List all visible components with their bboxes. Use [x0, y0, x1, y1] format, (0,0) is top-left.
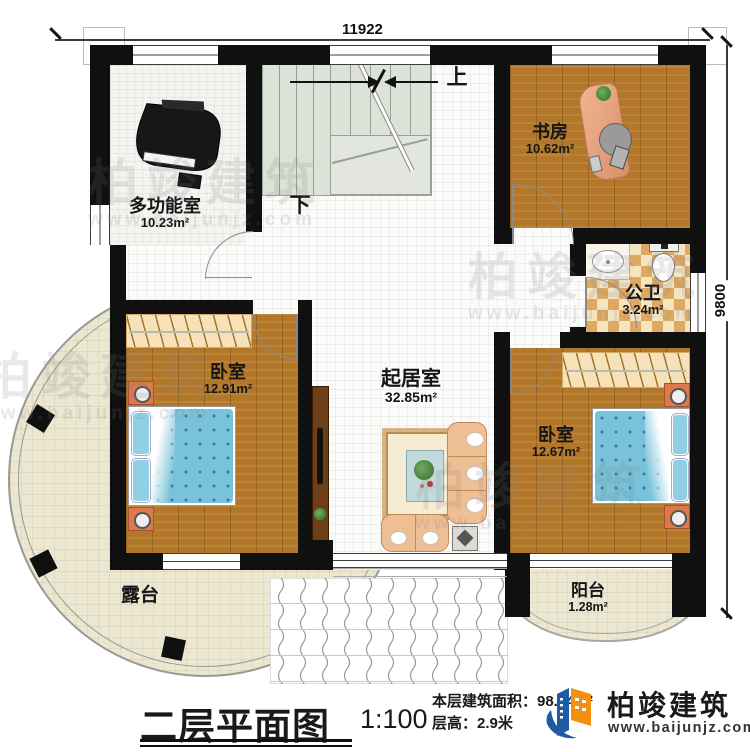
- sink-drain: [606, 260, 610, 264]
- nightstand-lamp-icon: [134, 512, 151, 529]
- cabinet-plant-icon: [314, 508, 326, 520]
- wall: [312, 540, 333, 570]
- sofa-pillow: [422, 531, 439, 545]
- bed-pillow: [132, 459, 150, 502]
- room-label-terrace: 露台: [105, 585, 175, 606]
- room-name: 卧室: [511, 425, 601, 445]
- room-name: 阳台: [548, 581, 628, 600]
- company-logo: 柏竣建筑 www.baijunjz.com: [545, 680, 745, 744]
- staircase: [262, 65, 432, 196]
- balcony-door: [530, 553, 672, 568]
- stair-arrowhead-left: [384, 76, 396, 88]
- wall: [690, 65, 706, 273]
- company-name: 柏竣建筑: [607, 684, 731, 724]
- wall: [658, 45, 706, 65]
- door-leaf: [205, 277, 252, 279]
- nightstand: [128, 381, 154, 405]
- wall: [690, 332, 706, 553]
- sofa-pillow: [466, 432, 484, 447]
- wall: [110, 553, 163, 570]
- room-label-balcony: 阳台 1.28m²: [548, 581, 628, 614]
- stair-arrow-line: [396, 81, 438, 83]
- room-area: 32.85m²: [363, 390, 459, 406]
- door-leaf: [585, 277, 587, 327]
- dimension-tick: [49, 27, 62, 40]
- wall: [218, 45, 330, 65]
- room-area: 10.62m²: [505, 142, 595, 157]
- door-leaf: [296, 314, 298, 359]
- bed-blanket-fold: [149, 409, 175, 503]
- desk-plant-icon: [596, 86, 611, 101]
- toilet-tank-button: [661, 244, 668, 249]
- room-name: 公卫: [598, 283, 688, 303]
- wardrobe: [126, 314, 252, 348]
- bed: [592, 408, 690, 504]
- nightstand-lamp-icon: [670, 388, 687, 405]
- window: [552, 45, 658, 65]
- stair-arrow-line: [290, 81, 368, 83]
- sofa-pillow: [466, 498, 484, 513]
- stair-treads: [262, 65, 330, 196]
- room-label-living: 起居室 32.85m²: [363, 368, 459, 406]
- wardrobe-rail: [566, 370, 687, 372]
- info-height-text: 层高：2.9米: [432, 712, 513, 733]
- wall: [240, 553, 312, 570]
- patio-door: [333, 553, 507, 568]
- bed-pillow: [132, 412, 150, 455]
- wall: [494, 228, 513, 244]
- room-area: 3.24m²: [598, 303, 688, 318]
- sofa-pillow: [466, 466, 484, 481]
- roof-tiles: [270, 578, 508, 684]
- window: [690, 273, 706, 332]
- window: [163, 553, 240, 570]
- room-area: 10.23m²: [95, 216, 235, 231]
- bed-blanket-fold: [645, 411, 671, 501]
- floor-plan: 多功能室 10.23m² 书房 10.62m² 公卫 3.24m² 起居室 32…: [0, 0, 750, 752]
- company-logo-icon: [545, 680, 601, 742]
- stairs-down-label: 下: [284, 194, 316, 218]
- tv-icon: [317, 428, 323, 484]
- nightstand: [128, 507, 154, 531]
- stair-landing: [330, 135, 431, 195]
- bed-pillow: [672, 414, 688, 455]
- wall: [505, 553, 530, 617]
- wall: [90, 45, 110, 205]
- title-underline: [140, 739, 352, 742]
- bed-pillow: [672, 459, 688, 501]
- wall: [672, 553, 706, 617]
- terrace-post: [161, 636, 186, 661]
- room-name: 多功能室: [95, 196, 235, 216]
- stairs-up-label: 上: [441, 66, 473, 90]
- room-name: 露台: [105, 585, 175, 606]
- bed: [128, 406, 236, 506]
- room-label-multi: 多功能室 10.23m²: [95, 196, 235, 231]
- room-label-study: 书房 10.62m²: [505, 122, 595, 157]
- wall: [110, 245, 126, 570]
- door-leaf: [510, 348, 512, 393]
- grand-piano-icon: [126, 96, 226, 192]
- wall: [430, 45, 552, 65]
- nightstand: [664, 505, 690, 529]
- title-scale: 1:100: [360, 704, 428, 735]
- nightstand-lamp-icon: [134, 386, 151, 403]
- company-url: www.baijunjz.com: [608, 720, 750, 736]
- window: [330, 45, 430, 65]
- room-area: 1.28m²: [548, 600, 628, 614]
- door-leaf: [512, 184, 514, 244]
- room-label-bed-right: 卧室 12.67m²: [511, 425, 601, 460]
- room-area: 12.91m²: [183, 382, 273, 397]
- title-underline: [140, 745, 352, 747]
- roof-tile-pattern: [270, 578, 508, 684]
- room-area: 12.67m²: [511, 445, 601, 460]
- wall: [246, 65, 262, 232]
- room-name: 起居室: [363, 368, 459, 390]
- dimension-top-value: 11922: [338, 21, 387, 38]
- dimension-line-top: [55, 39, 710, 41]
- wall: [298, 300, 312, 570]
- patio-step-lines: [333, 568, 507, 577]
- wall: [573, 228, 706, 244]
- sofa-pillow: [390, 531, 407, 545]
- room-label-bed-left: 卧室 12.91m²: [183, 362, 273, 397]
- window: [133, 45, 218, 65]
- dimension-right-value: 9800: [712, 280, 729, 321]
- dimension-line-right: [726, 45, 728, 618]
- room-label-bath: 公卫 3.24m²: [598, 283, 688, 318]
- wall: [560, 332, 706, 348]
- nightstand-lamp-icon: [670, 510, 687, 527]
- nightstand: [664, 383, 690, 407]
- wall: [494, 332, 510, 570]
- room-name: 书房: [505, 122, 595, 142]
- wall: [570, 244, 586, 276]
- wall: [110, 300, 253, 314]
- table-flowers-icon: [414, 460, 434, 480]
- wardrobe-rail: [129, 331, 248, 333]
- room-name: 卧室: [183, 362, 273, 382]
